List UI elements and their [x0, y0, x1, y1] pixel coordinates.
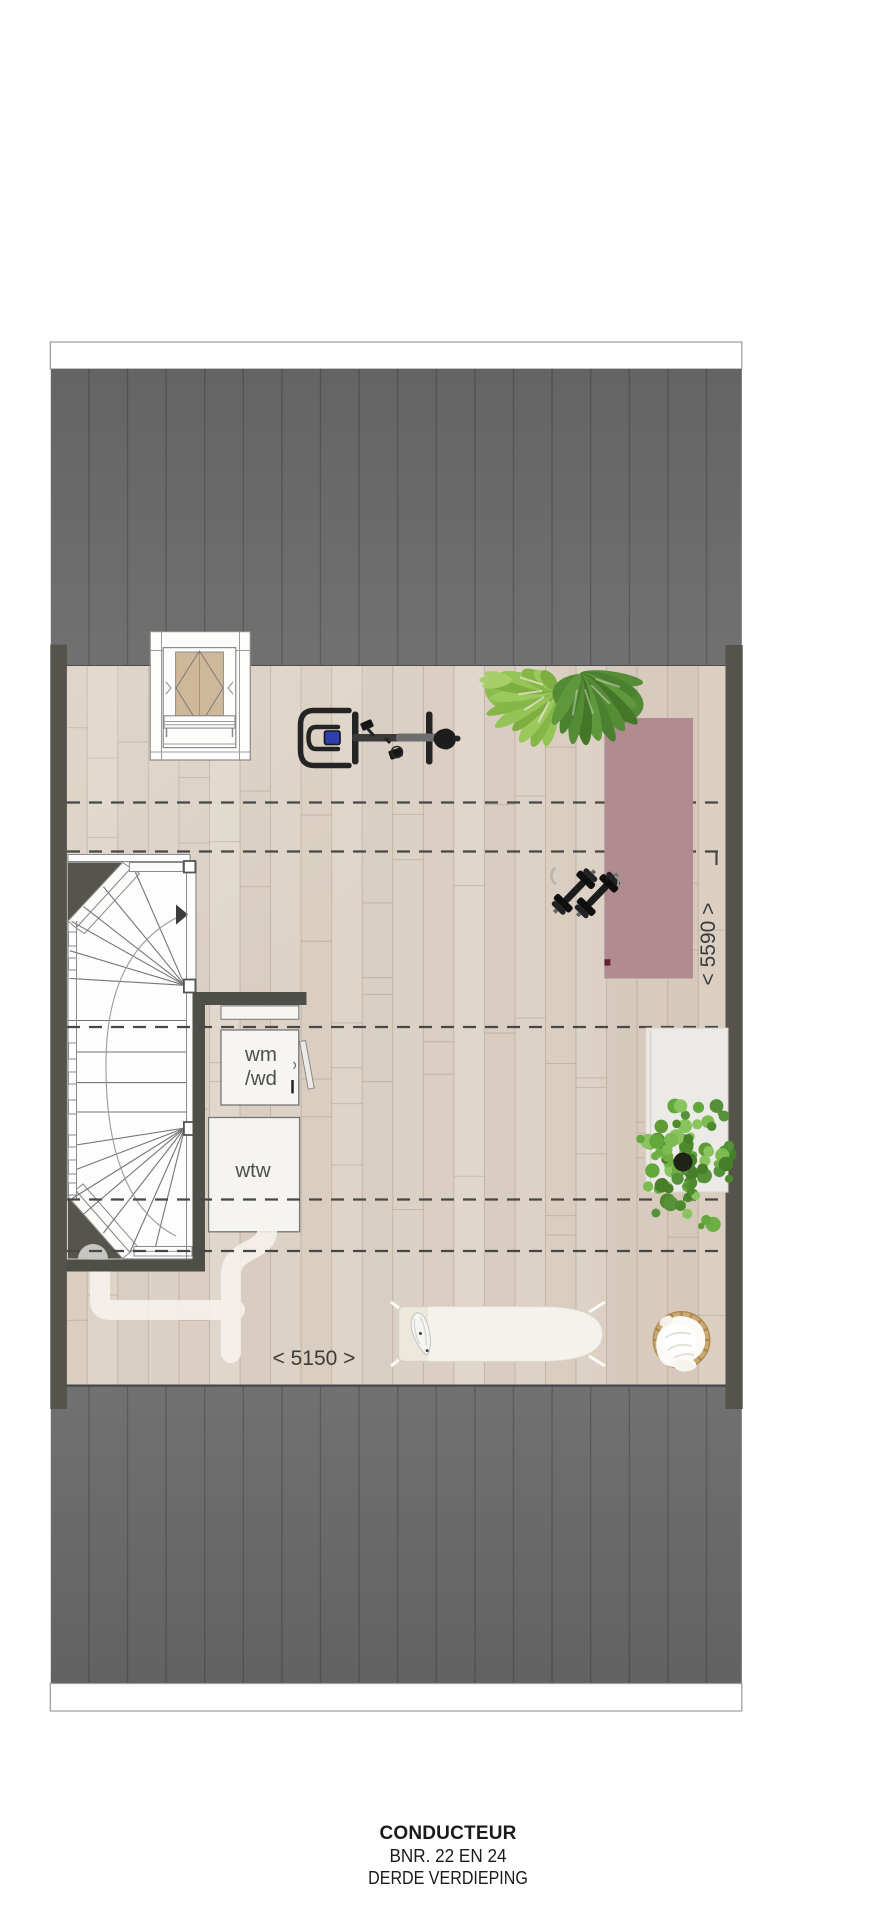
- svg-text:wtw: wtw: [234, 1159, 271, 1182]
- svg-text:< 5150 >: < 5150 >: [273, 1347, 356, 1370]
- svg-text:/wd: /wd: [245, 1067, 277, 1090]
- svg-text:wm: wm: [244, 1043, 277, 1066]
- svg-text:< 5590 >: < 5590 >: [697, 903, 720, 986]
